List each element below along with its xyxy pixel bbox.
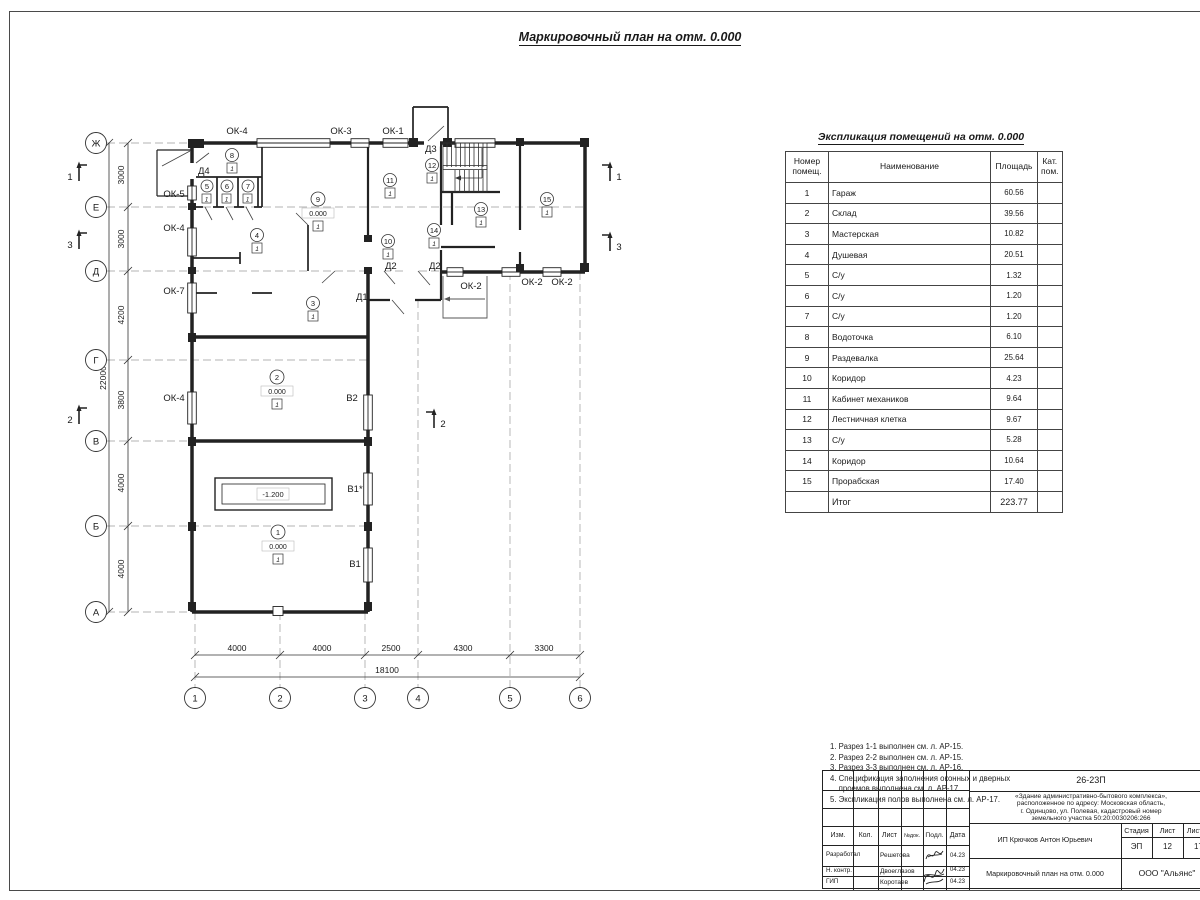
svg-text:ОК-7: ОК-7 [163,286,184,297]
col-room-number: Номер помещ. [786,152,829,183]
total-area: 223.77 [991,491,1038,512]
svg-text:3: 3 [616,242,621,253]
svg-text:В: В [93,437,99,448]
room-number: 8 [786,327,829,348]
svg-text:4000: 4000 [116,559,126,578]
room-area: 39.56 [991,203,1038,224]
svg-text:ОК-4: ОК-4 [163,393,184,404]
svg-text:Е: Е [93,203,99,214]
room-cat [1038,327,1063,348]
svg-text:4: 4 [255,231,259,240]
room-cat [1038,471,1063,492]
room-markers: 1 0.000 1 2 0.000 1 9 0.000 1 3 1 4 [201,149,554,565]
svg-text:10: 10 [384,237,392,246]
svg-text:4000: 4000 [313,643,332,653]
svg-text:4: 4 [415,694,420,705]
stamp-doc-title: Маркировочный план на отм. 0.000 [971,870,1119,878]
svg-text:4000: 4000 [116,473,126,492]
room-name: Раздевалка [829,347,991,368]
room-cat [1038,224,1063,245]
room-cat [1038,203,1063,224]
svg-text:Д4: Д4 [198,166,210,177]
svg-text:1: 1 [246,196,250,203]
pit-elevation: -1.200 [262,490,283,499]
sheet-label: Лист [1152,827,1183,835]
room-name: Душевая [829,244,991,265]
svg-text:1: 1 [276,557,280,564]
stamp-designer: ИП Крючков Антон Юрьевич [971,836,1119,844]
room-number: 1 [786,183,829,204]
table-row: 11 Кабинет механиков 9.64 [786,388,1063,409]
room-area: 25.64 [991,347,1038,368]
room-number: 12 [786,409,829,430]
svg-text:1: 1 [225,196,229,203]
svg-text:1: 1 [192,694,197,705]
room-number: 5 [786,265,829,286]
svg-text:Д: Д [93,267,100,278]
table-row: 2 Склад 39.56 [786,203,1063,224]
svg-text:9: 9 [316,195,320,204]
svg-text:12: 12 [428,161,436,170]
room-cat [1038,285,1063,306]
svg-text:ОК-1: ОК-1 [382,126,403,137]
svg-text:1: 1 [545,210,549,217]
room-cat [1038,244,1063,265]
room-cat [1038,306,1063,327]
room-area: 10.82 [991,224,1038,245]
col-room-name: Наименование [829,152,991,183]
svg-text:7: 7 [246,182,250,191]
svg-text:В2: В2 [346,393,358,404]
sheet-value: 12 [1152,843,1183,852]
room-name: Коридор [829,368,991,389]
section-marks [77,162,613,429]
svg-text:14: 14 [430,226,438,235]
exterior-walls [192,143,585,612]
room-cat [1038,388,1063,409]
room-area: 20.51 [991,244,1038,265]
room-area: 60.56 [991,183,1038,204]
total-label: Итог [829,491,991,512]
table-row: 12 Лестничная клетка 9.67 [786,409,1063,430]
room-cat [1038,347,1063,368]
svg-text:Ж: Ж [92,139,101,150]
sign-name: Решетова [878,852,925,859]
room-name: Водоточка [829,327,991,348]
room-area: 9.67 [991,409,1038,430]
svg-text:Д2: Д2 [385,261,397,272]
stamp-col-podp: Подл. [923,832,946,839]
room-name: Лестничная клетка [829,409,991,430]
room-number: 3 [786,224,829,245]
svg-text:1: 1 [388,191,392,198]
room-name: Кабинет механиков [829,388,991,409]
svg-text:4200: 4200 [116,305,126,324]
svg-text:В1: В1 [349,559,361,570]
room-number: 10 [786,368,829,389]
table-row: 7 С/у 1.20 [786,306,1063,327]
sign-date: 04.23 [946,879,969,886]
door-leaves [162,126,444,314]
svg-text:3300: 3300 [535,643,554,653]
room-number: 11 [786,388,829,409]
inspection-pit: -1.200 [215,478,332,510]
svg-text:1: 1 [386,252,390,259]
sign-role: ГИП [824,879,880,886]
svg-text:18100: 18100 [375,665,399,675]
svg-text:В1*: В1* [347,484,363,495]
svg-text:0.000: 0.000 [309,211,327,218]
svg-text:4000: 4000 [228,643,247,653]
stamp-object: «Здание административно-бытового комплек… [971,793,1200,823]
note-line: 2. Разрез 2-2 выполнен см. л. АР-15. [830,753,1010,763]
svg-text:13: 13 [477,205,485,214]
svg-text:4300: 4300 [454,643,473,653]
table-row: 3 Мастерская 10.82 [786,224,1063,245]
svg-text:2: 2 [275,373,279,382]
room-cat [1038,409,1063,430]
explication-header: Номер помещ. Наименование Площадь Кат. п… [786,152,1063,183]
room-name: Склад [829,203,991,224]
svg-text:1: 1 [255,246,259,253]
svg-text:5: 5 [205,182,209,191]
room-number: 4 [786,244,829,265]
explication-body: 1 Гараж 60.56 2 Склад 39.56 3 Мастерская… [786,183,1063,492]
svg-text:2: 2 [67,415,72,426]
svg-text:ОК-2: ОК-2 [521,277,542,288]
window-symbols [188,139,561,616]
signature [923,845,946,865]
room-number: 13 [786,430,829,451]
table-row: 14 Коридор 10.64 [786,450,1063,471]
table-row: 10 Коридор 4.23 [786,368,1063,389]
room-name: Мастерская [829,224,991,245]
partitions [157,107,448,293]
stamp-col-list: Лист [878,832,901,840]
sheets-value: 17 [1183,843,1200,852]
svg-text:3000: 3000 [116,229,126,248]
sign-name: Двоеглазов [878,868,925,875]
room-area: 1.20 [991,306,1038,327]
stamp-col-izm: Изм. [823,832,853,840]
signature [920,864,947,889]
explication-title: Экспликация помещений на отм. 0.000 [785,131,1057,143]
room-name: С/у [829,306,991,327]
svg-text:6: 6 [225,182,229,191]
table-row: 6 С/у 1.20 [786,285,1063,306]
explication-footer: Итог 223.77 [786,491,1063,512]
room-area: 6.10 [991,327,1038,348]
stamp-object-line: расположенное по адресу: Московская обла… [971,800,1200,807]
svg-text:А: А [93,608,100,619]
stage-value: ЭП [1121,843,1152,852]
svg-text:2500: 2500 [382,643,401,653]
svg-text:1: 1 [275,402,279,409]
room-number: 2 [786,203,829,224]
stamp-col-kol: Кол. [853,832,878,840]
note-line: 1. Разрез 1-1 выполнен см. л. АР-15. [830,742,1010,752]
staircase [443,143,487,192]
drawing-sheet: Маркировочный план на отм. 0.000 [0,0,1200,900]
svg-text:ОК-2: ОК-2 [551,277,572,288]
svg-text:8: 8 [230,151,234,160]
svg-text:ОК-5: ОК-5 [163,189,184,200]
table-row: 8 Водоточка 6.10 [786,327,1063,348]
stamp-object-line: г. Одинцово, ул. Полевая, кадастровый но… [971,808,1200,815]
col-room-cat: Кат. пом. [1038,152,1063,183]
svg-text:1: 1 [479,220,483,227]
title-block: Изм. Кол. Лист №док. Подл. Дата Разработ… [822,770,1200,889]
room-area: 17.40 [991,471,1038,492]
svg-text:ОК-2: ОК-2 [460,281,481,292]
room-name: Гараж [829,183,991,204]
svg-text:3: 3 [311,299,315,308]
col-room-area: Площадь [991,152,1038,183]
stage-label: Стадия [1121,827,1152,835]
table-row: 13 С/у 5.28 [786,430,1063,451]
svg-text:1: 1 [67,172,72,183]
svg-text:Д1: Д1 [356,292,368,303]
section-numbers: 1 3 2 1 3 2 [67,172,621,430]
svg-text:3: 3 [362,694,367,705]
room-number: 15 [786,471,829,492]
table-row: 9 Раздевалка 25.64 [786,347,1063,368]
interior-walls [368,143,520,300]
room-area: 9.64 [991,388,1038,409]
room-area: 5.28 [991,430,1038,451]
svg-text:1: 1 [316,224,320,231]
room-name: Коридор [829,450,991,471]
stamp-col-data: Дата [946,832,969,840]
sign-role: Н. контр. [824,868,880,875]
room-area: 4.23 [991,368,1038,389]
room-cat [1038,265,1063,286]
svg-text:Д2: Д2 [429,261,441,272]
room-cat [1038,183,1063,204]
sign-role: Разработал [824,852,880,859]
stamp-col-ndok: №док. [901,833,923,839]
explication-table: Номер помещ. Наименование Площадь Кат. п… [785,151,1063,513]
room-number: 7 [786,306,829,327]
table-row: 15 Прорабская 17.40 [786,471,1063,492]
room-number: 9 [786,347,829,368]
svg-text:11: 11 [386,176,394,185]
table-row: 4 Душевая 20.51 [786,244,1063,265]
svg-text:2: 2 [440,419,445,430]
room-cat [1038,450,1063,471]
svg-text:0.000: 0.000 [268,389,286,396]
svg-text:ОК-3: ОК-3 [330,126,351,137]
svg-text:Г: Г [93,356,98,367]
svg-text:1: 1 [205,196,209,203]
svg-text:Д3: Д3 [425,144,437,155]
svg-text:3800: 3800 [116,390,126,409]
floor-plan: -1.200 3000 3000 4200 3800 4000 4000 220… [0,0,700,720]
svg-text:1: 1 [430,176,434,183]
sign-date: 04.23 [946,867,969,874]
room-name: С/у [829,265,991,286]
room-name: С/у [829,285,991,306]
room-area: 1.20 [991,285,1038,306]
stamp-doc-code: 26-23П [969,776,1200,786]
sheets-label: Листов [1183,827,1200,835]
dimension-lines [105,139,584,681]
room-cat [1038,430,1063,451]
sign-date: 04.23 [946,853,969,860]
stamp-company: ООО "Альянс" [1121,869,1200,878]
svg-text:1: 1 [230,166,234,173]
stamp-object-line: земельного участка 50:20:0030206:266 [971,815,1200,822]
dimension-labels: 3000 3000 4200 3800 4000 4000 22000 4000… [98,165,554,675]
svg-text:1: 1 [276,528,280,537]
svg-text:ОК-4: ОК-4 [226,126,247,137]
svg-text:1: 1 [616,172,621,183]
room-area: 1.32 [991,265,1038,286]
svg-text:Б: Б [93,522,99,533]
room-area: 10.64 [991,450,1038,471]
room-cat [1038,368,1063,389]
svg-text:5: 5 [507,694,512,705]
svg-text:3: 3 [67,240,72,251]
table-row: 1 Гараж 60.56 [786,183,1063,204]
wall-pilasters [188,138,589,611]
table-row: 5 С/у 1.32 [786,265,1063,286]
svg-text:2: 2 [277,694,282,705]
svg-text:6: 6 [577,694,582,705]
svg-text:0.000: 0.000 [269,544,287,551]
svg-text:1: 1 [311,314,315,321]
svg-text:1: 1 [432,241,436,248]
svg-text:3000: 3000 [116,165,126,184]
room-number: 14 [786,450,829,471]
room-number: 6 [786,285,829,306]
axis-markers [86,133,591,709]
svg-text:15: 15 [543,195,551,204]
room-name: Прорабская [829,471,991,492]
sign-name: Коротаев [878,879,925,886]
room-name: С/у [829,430,991,451]
svg-text:ОК-4: ОК-4 [163,223,184,234]
